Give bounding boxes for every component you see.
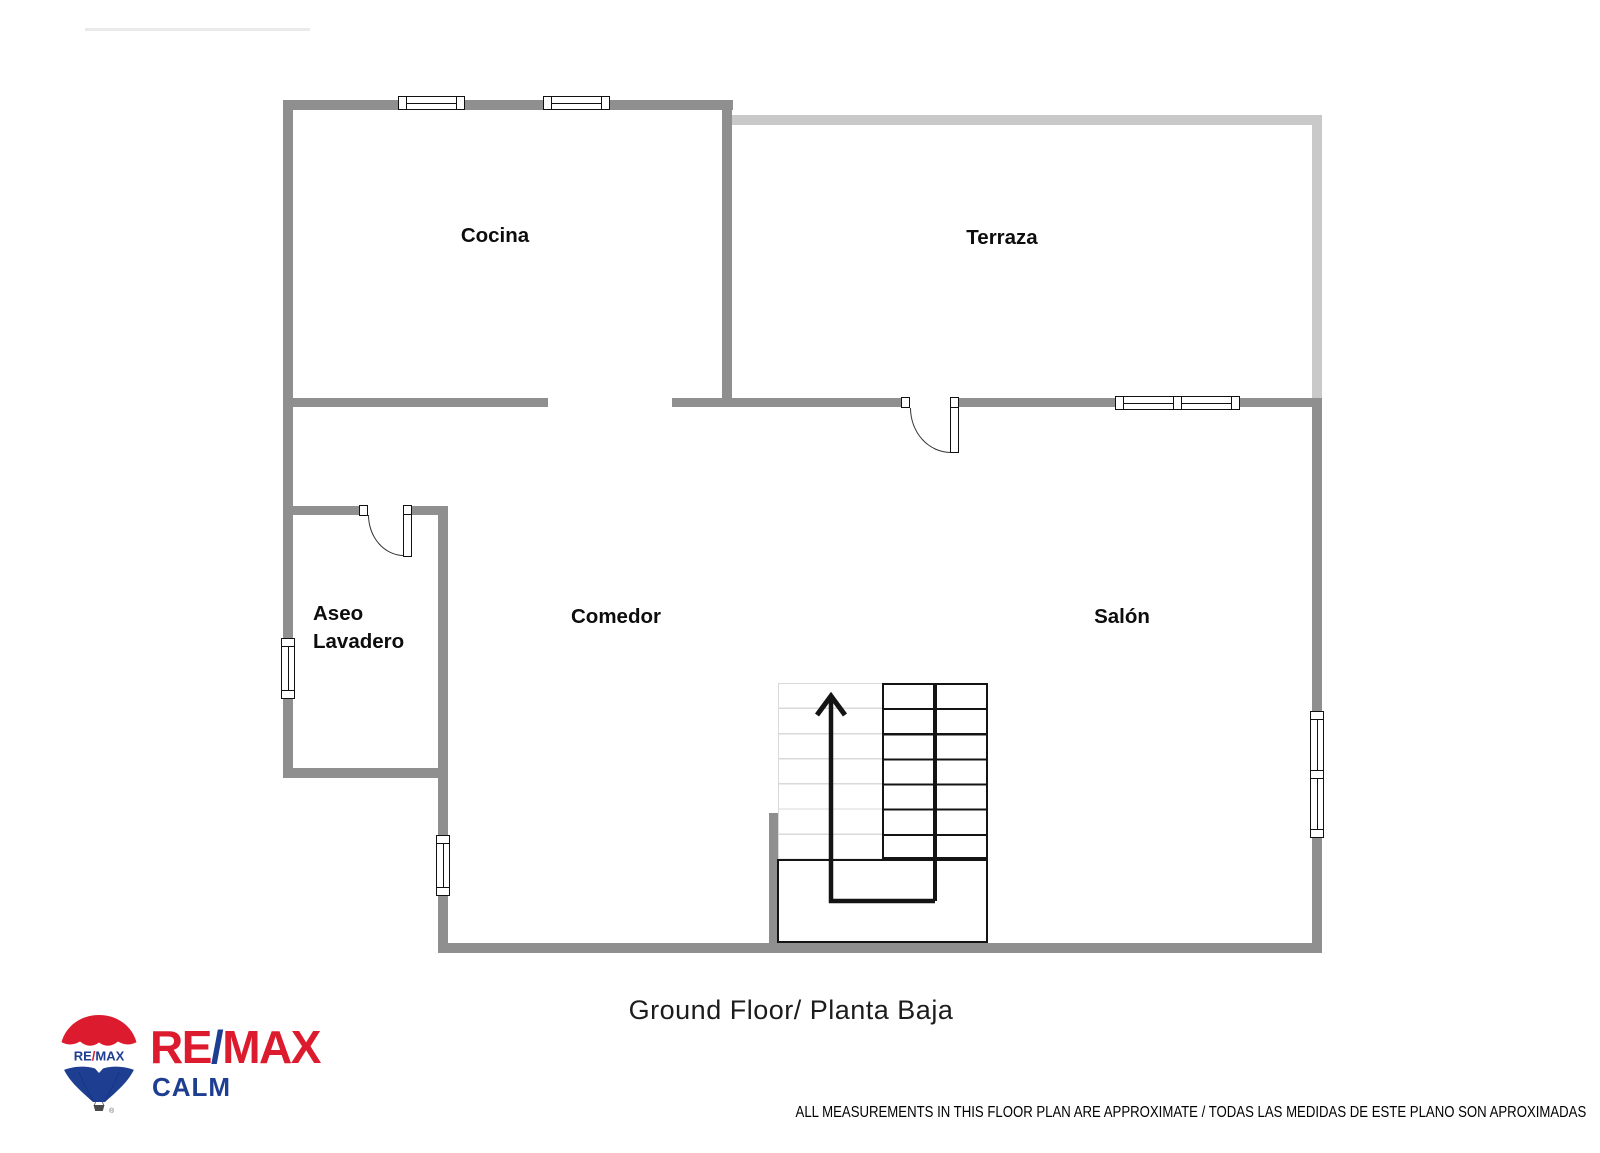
wall-cocina-top xyxy=(283,100,733,110)
room-label-salon: Salón xyxy=(1094,605,1150,629)
wordmark-re: RE xyxy=(150,1021,211,1073)
window-cap xyxy=(1310,829,1324,838)
window-cap xyxy=(281,638,295,647)
door-arc xyxy=(368,515,404,556)
window-symbol-aseo xyxy=(281,638,295,698)
floor-title: Ground Floor/ Planta Baja xyxy=(629,995,954,1026)
window-cap xyxy=(436,835,450,844)
window-cap xyxy=(1310,711,1324,720)
remax-subbrand: CALM xyxy=(152,1072,231,1103)
window-mullion xyxy=(399,103,463,104)
wall-middle-a xyxy=(672,398,902,407)
room-label-comedor: Comedor xyxy=(571,605,661,629)
window-symbol-salon xyxy=(1310,711,1324,837)
window-cap xyxy=(1173,396,1182,410)
door-hinge xyxy=(901,397,910,408)
room-label-terraza: Terraza xyxy=(966,226,1037,250)
window-symbol-cocina-2 xyxy=(543,96,609,110)
window-symbol-cocina-1 xyxy=(398,96,464,110)
balloon-text: RE/MAX xyxy=(74,1049,125,1064)
wall-right-lower xyxy=(1312,835,1322,953)
window-cap xyxy=(1310,770,1324,779)
window-mullion xyxy=(544,103,608,104)
wall-left-upper xyxy=(283,110,293,639)
registered-mark: ® xyxy=(109,1107,115,1115)
wall-left-lower xyxy=(283,698,293,778)
wall-bottom xyxy=(438,943,1322,953)
wall-aseo-bottom xyxy=(283,768,448,778)
faint-artifact-line xyxy=(85,28,310,31)
wall-terraza-right xyxy=(1312,125,1322,398)
aseo-line1: Aseo xyxy=(313,602,363,625)
window-cap xyxy=(436,887,450,896)
wall-middle-b xyxy=(958,398,1117,407)
wordmark-max: MAX xyxy=(222,1021,320,1073)
room-label-cocina: Cocina xyxy=(461,224,529,248)
window-cap xyxy=(601,96,610,110)
disclaimer-text: ALL MEASUREMENTS IN THIS FLOOR PLAN ARE … xyxy=(795,1104,1586,1122)
window-cap xyxy=(281,690,295,699)
wall-aseo-top-left xyxy=(283,506,360,515)
window-mullion xyxy=(288,639,289,697)
remax-wordmark: RE/MAX xyxy=(150,1024,320,1070)
door-leaf xyxy=(403,514,412,557)
wall-cocina-right xyxy=(722,110,732,407)
wordmark-slash: / xyxy=(211,1021,222,1073)
wall-aseo-right-upper xyxy=(438,506,448,835)
aseo-line2: Lavadero xyxy=(313,630,404,653)
wall-middle-c xyxy=(1237,398,1322,407)
wall-right-upper xyxy=(1312,407,1322,713)
door-arc xyxy=(910,408,951,453)
window-cap xyxy=(1115,396,1124,410)
room-label-aseo-lavadero: Aseo Lavadero xyxy=(313,600,404,655)
window-cap xyxy=(1231,396,1240,410)
door-leaf xyxy=(950,407,959,453)
wall-terraza-top xyxy=(732,115,1322,125)
window-symbol-terraza xyxy=(1115,396,1239,410)
remax-balloon-icon: RE/MAX ® xyxy=(57,1013,141,1115)
stairs-up-arrow xyxy=(760,670,1000,920)
window-cap xyxy=(543,96,552,110)
wall-cocina-bottom xyxy=(293,398,548,407)
window-cap xyxy=(456,96,465,110)
window-cap xyxy=(398,96,407,110)
door-hinge xyxy=(359,505,368,516)
window-mullion xyxy=(443,836,444,894)
floorplan-canvas: Cocina Terraza Aseo Lavadero Comedor Sal… xyxy=(0,0,1600,1153)
window-symbol-comedor xyxy=(436,835,450,895)
